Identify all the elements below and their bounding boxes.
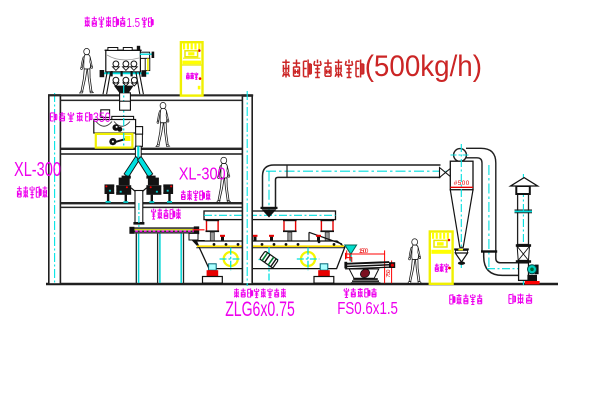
svg-text:XL-300: XL-300 [179,164,226,184]
svg-text:ZLG6x0.75: ZLG6x0.75 [225,297,295,321]
svg-text:(500kg/h): (500kg/h) [365,50,482,83]
svg-text:XL-300: XL-300 [14,157,61,180]
svg-text:1500: 1500 [359,249,369,255]
svg-text:750: 750 [386,270,392,278]
svg-text:FS0.6x1.5: FS0.6x1.5 [337,299,398,318]
svg-text:350: 350 [93,110,111,126]
svg-text:1.5: 1.5 [127,17,141,31]
